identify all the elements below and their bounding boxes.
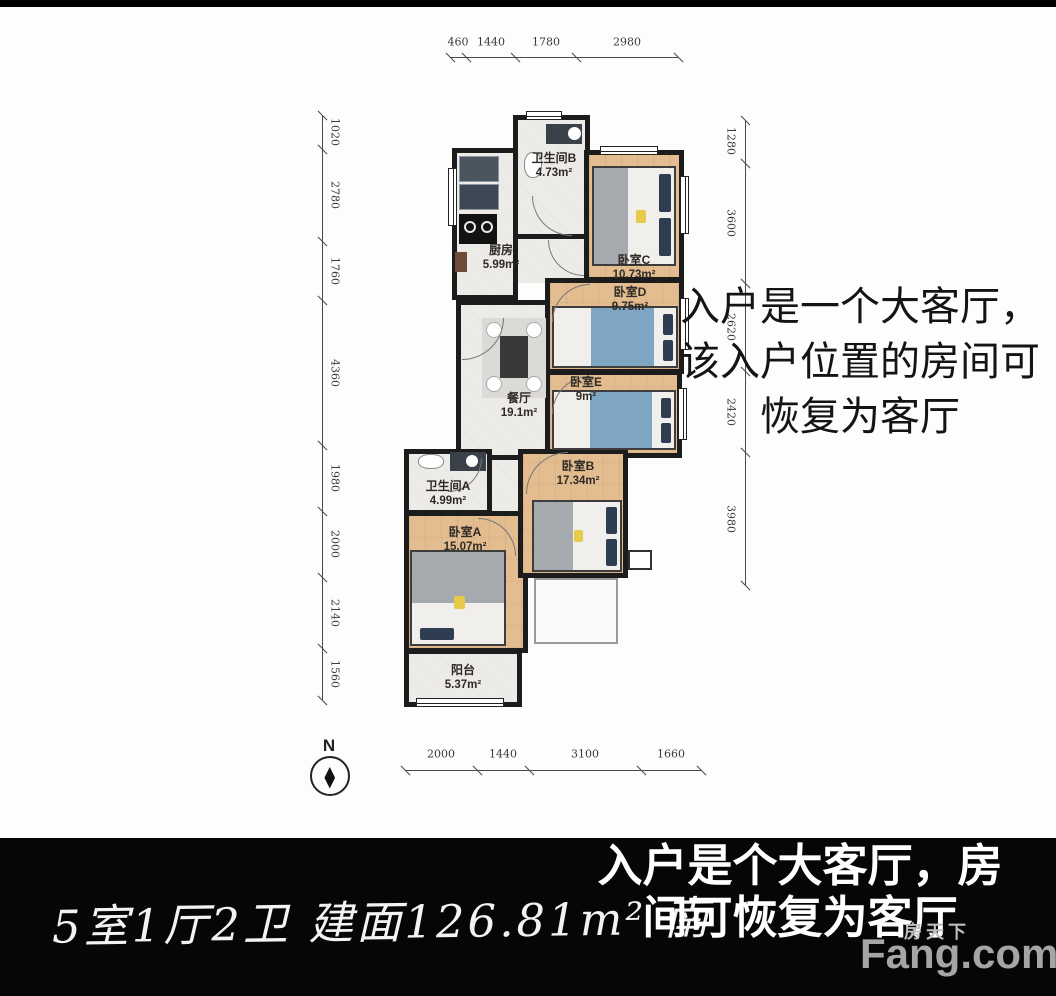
dim-label: 2140 <box>329 599 342 627</box>
dim-label: 3600 <box>725 209 738 237</box>
pillow <box>659 218 671 256</box>
toilet-icon <box>418 454 444 469</box>
room-label: 卧室B 17.34m² <box>540 458 616 490</box>
side-note-line: 该入户位置的房间可 <box>660 335 1056 390</box>
room-name: 卧室C <box>618 253 651 267</box>
pillow <box>636 210 646 223</box>
window-icon <box>416 698 504 707</box>
burner-icon <box>481 221 493 233</box>
room-label: 卧室E 9m² <box>556 374 616 406</box>
room-area: 9.75m² <box>594 300 666 316</box>
pillow <box>454 596 465 609</box>
room-name: 卧室D <box>614 285 647 299</box>
dim-line-left <box>322 115 323 700</box>
room-name: 卧室A <box>449 525 482 539</box>
room-area: 5.99m² <box>468 258 534 274</box>
dim-label: 2780 <box>329 181 342 209</box>
room-label: 餐厅 19.1m² <box>488 390 550 422</box>
side-note-line: 入户是一个大客厅， <box>660 280 1056 335</box>
window-icon <box>448 168 457 226</box>
dim-label: 460 <box>448 36 469 49</box>
top-black-strip <box>0 0 1056 7</box>
room-label: 卫生间B 4.73m² <box>520 150 588 182</box>
blanket <box>412 552 504 603</box>
side-note: 入户是一个大客厅， 该入户位置的房间可 恢复为客厅 <box>660 280 1056 446</box>
basin-icon <box>568 127 581 140</box>
blanket <box>594 168 628 264</box>
room-label: 厨房 5.99m² <box>468 242 534 274</box>
pillow <box>420 628 454 640</box>
footer-banner: 5室1厅2卫 建面126.81m² 南 入户是个大客厅，房 间可恢复为客厅 房天… <box>0 838 1056 996</box>
room-name: 阳台 <box>451 663 475 677</box>
kitchen-sink-icon <box>459 184 499 210</box>
dim-label: 1280 <box>725 127 738 155</box>
kitchen-counter-icon <box>459 156 499 182</box>
lower-balcony-box <box>534 578 618 644</box>
fang-logo-cn: 房天下 <box>904 918 970 944</box>
room-name: 卧室E <box>570 375 602 389</box>
dim-label: 1760 <box>329 257 342 285</box>
fang-logo: 房天下 Fang.com <box>860 930 1056 978</box>
side-note-line: 恢复为客厅 <box>660 390 1056 445</box>
room-area: 5.37m² <box>432 678 494 694</box>
window-icon <box>526 111 562 120</box>
burner-icon <box>464 221 476 233</box>
kitchen-cabinet-icon <box>455 252 467 272</box>
dim-label: 1020 <box>329 118 342 146</box>
floorplan-page: 460 1440 1780 2980 2000 1440 3100 1660 1… <box>0 0 1056 996</box>
room-area: 17.34m² <box>540 474 616 490</box>
room-label: 卧室D 9.75m² <box>594 284 666 316</box>
room-name: 卫生间B <box>532 151 577 165</box>
pillow <box>574 530 583 542</box>
room-name: 卧室B <box>562 459 595 473</box>
compass-icon: ◆ <box>310 756 350 796</box>
dim-line-top <box>450 57 678 58</box>
dim-label: 3100 <box>571 748 599 761</box>
dim-label: 1780 <box>532 36 560 49</box>
dim-label: 2000 <box>329 530 342 558</box>
dim-label: 1560 <box>329 660 342 688</box>
room-name: 厨房 <box>489 243 513 257</box>
room-area: 4.73m² <box>520 166 588 182</box>
pillow <box>606 539 617 566</box>
window-icon <box>600 146 658 155</box>
dim-label: 1440 <box>477 36 505 49</box>
window-icon <box>680 176 689 234</box>
chair-icon <box>526 322 542 338</box>
bed-icon <box>532 500 622 572</box>
dim-label: 1660 <box>657 748 685 761</box>
bed-icon <box>592 166 676 266</box>
room-label: 卧室C 10.73m² <box>596 252 672 284</box>
dim-label: 1440 <box>489 748 517 761</box>
pillow <box>606 507 617 534</box>
corridor <box>492 455 518 511</box>
pillow <box>659 174 671 212</box>
room-label: 阳台 5.37m² <box>432 662 494 694</box>
dim-line-bottom <box>405 770 701 771</box>
blanket <box>534 502 573 570</box>
bed-icon <box>410 550 506 646</box>
blanket <box>591 308 654 366</box>
dim-label: 3980 <box>725 505 738 533</box>
dim-label: 4360 <box>329 359 342 387</box>
room-label: 卫生间A 4.99m² <box>410 478 486 510</box>
room-area: 19.1m² <box>488 406 550 422</box>
footer-note-line: 入户是个大客厅，房 <box>560 840 1040 892</box>
room-name: 卫生间A <box>426 479 471 493</box>
compass-north-label: N <box>312 736 346 756</box>
room-area: 15.07m² <box>428 540 502 556</box>
dim-label: 2980 <box>613 36 641 49</box>
dim-label: 1980 <box>329 464 342 492</box>
dim-label: 2000 <box>427 748 455 761</box>
compass-needle-icon: ◆ <box>325 762 336 790</box>
room-area: 9m² <box>556 390 616 406</box>
room-name: 餐厅 <box>507 391 531 405</box>
room-label: 卧室A 15.07m² <box>428 524 502 556</box>
dining-table-icon <box>500 336 528 378</box>
room-area: 4.99m² <box>410 494 486 510</box>
ac-unit-box <box>628 550 652 570</box>
